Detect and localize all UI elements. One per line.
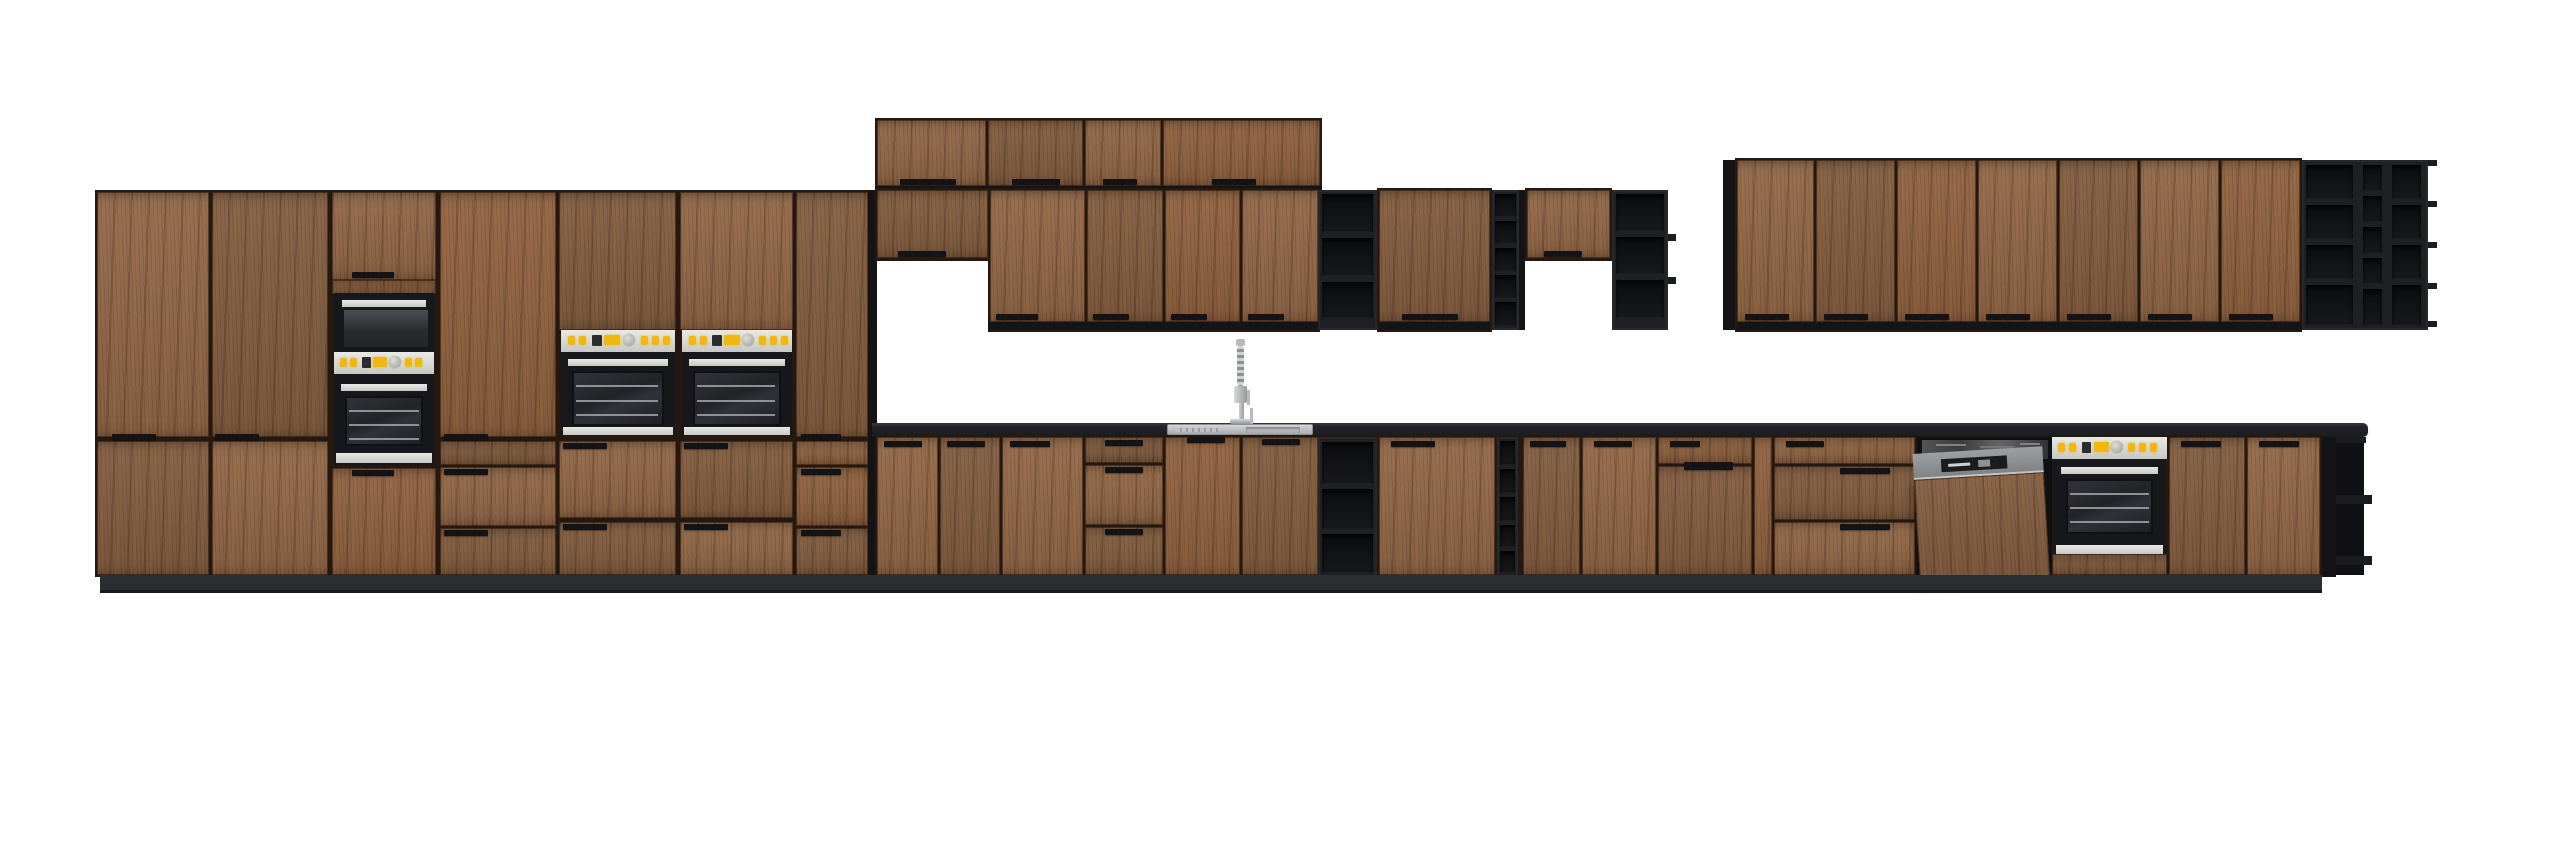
handle (1402, 314, 1458, 320)
oven-door (682, 352, 792, 435)
tall-cabinet-door (796, 192, 868, 437)
open-shelf-cubby (1322, 282, 1373, 318)
wall-door (1087, 190, 1163, 322)
sink-basin (1246, 427, 1300, 433)
bottle-cubby (1500, 497, 1515, 521)
black-open-shelf-unit (1612, 190, 1668, 330)
handle (996, 314, 1038, 320)
tower-top-panel (680, 192, 793, 330)
handle (1105, 467, 1143, 473)
compact-oven-door (334, 374, 434, 465)
handle (1544, 251, 1582, 257)
wall-door (1978, 160, 2057, 322)
open-shelf-cubby (2306, 165, 2353, 199)
handle (801, 530, 841, 536)
handle (1905, 314, 1949, 320)
oven-selector (592, 335, 602, 346)
oven-knob (2111, 441, 2123, 453)
bottle-cubby (1500, 469, 1515, 493)
base-door-wide (1379, 437, 1495, 575)
right-run-underside (1737, 322, 2302, 330)
handle (352, 470, 394, 476)
dishwasher-door (1912, 446, 2050, 584)
bottle-cubby (1495, 275, 1516, 298)
dishwasher-logo (1978, 459, 1990, 467)
faucet-base (1230, 419, 1251, 424)
drawer-front (440, 441, 556, 465)
drawer-front (1774, 466, 1915, 520)
drawer-front (680, 441, 793, 518)
bottle-cubby (2363, 258, 2382, 284)
oven-handle-bar (568, 359, 668, 366)
tall-cabinet-door (440, 192, 556, 437)
oven-rack (2070, 507, 2149, 509)
oven-rack (576, 400, 658, 402)
oven-dial-icon (641, 336, 648, 345)
dishwasher-wood-front (1914, 472, 2050, 585)
handle (1262, 439, 1300, 445)
open-shelf-cubby (1322, 489, 1373, 529)
handle (898, 251, 946, 257)
wall-door (990, 190, 1085, 322)
oven-control-panel (2052, 437, 2167, 459)
open-shelf-cubby (2392, 205, 2421, 239)
stacked-door (877, 120, 986, 186)
wall-door-wide (1379, 190, 1490, 322)
handle (1105, 529, 1143, 535)
black-open-shelf-base (1318, 437, 1377, 577)
wall-door (1816, 160, 1895, 322)
tall-cabinet-door (212, 192, 328, 437)
oven-dial-icon (579, 336, 586, 345)
open-shelf-cubby (2306, 245, 2353, 279)
plinth (100, 575, 2322, 593)
right-run-side-panel (1723, 160, 1735, 330)
tall-cabinet-lower-door (212, 441, 328, 575)
oven-handle-bar (341, 384, 427, 391)
oven-selector (2082, 442, 2091, 453)
handle (684, 443, 728, 449)
oven-glass (693, 371, 781, 426)
oven-knob (389, 356, 401, 368)
oven-bottom-trim (563, 427, 673, 435)
handle (1391, 441, 1435, 447)
open-shelf-cubby (1322, 442, 1373, 484)
bottle-cubby (2363, 165, 2382, 191)
open-shelf-cubby (1616, 194, 1664, 231)
handle (2148, 314, 2192, 320)
oven-selector (712, 335, 722, 346)
handle (1840, 524, 1890, 530)
handle (947, 441, 985, 447)
corner-shelf (2336, 495, 2372, 504)
oven-dial-icon (2150, 443, 2157, 452)
handle (684, 524, 728, 530)
corner-side-panel (2322, 437, 2336, 577)
oven-rack (697, 385, 775, 387)
filler-panel (1754, 437, 1772, 575)
oven-glass (345, 396, 423, 446)
bridge-flip-door (1527, 190, 1610, 258)
dishwasher-button-panel (1941, 455, 2008, 472)
handle (1212, 179, 1256, 185)
handle (900, 179, 956, 185)
handle (1745, 314, 1789, 320)
handle (2259, 441, 2299, 447)
faucet-lever (1247, 390, 1250, 405)
base-door (940, 437, 1000, 575)
oven-bottom-trim (684, 427, 790, 435)
oven-knob (742, 334, 754, 346)
open-shelf-cubby (2306, 285, 2353, 325)
oven-base-strip (2052, 554, 2167, 575)
handle (1840, 468, 1890, 474)
bottle-cubby (1495, 302, 1516, 326)
shelf-tab (1668, 234, 1676, 241)
oven-dial-icon (350, 358, 357, 367)
bottle-cubby (1500, 441, 1515, 465)
wall-door (2059, 160, 2138, 322)
bottle-cubby (1495, 194, 1516, 217)
handle (1010, 441, 1050, 447)
oven-handle-bar (2061, 467, 2158, 474)
oven-knob (623, 334, 635, 346)
oven-door (561, 352, 675, 435)
bottle-cubby (1495, 221, 1516, 244)
drawer-front (796, 441, 868, 465)
kitchen-render (0, 0, 2560, 847)
wall-door (1897, 160, 1976, 322)
handle (444, 434, 488, 440)
open-shelf-cubby (1616, 280, 1664, 318)
handle (1684, 462, 1733, 470)
black-open-shelf-unit (1318, 190, 1377, 330)
faucet-body (1234, 386, 1247, 403)
handle (215, 434, 259, 440)
oven-control-panel (682, 330, 792, 352)
handle (1786, 441, 1824, 447)
oven-bottom-trim (2056, 545, 2163, 554)
oven-selector (362, 357, 371, 368)
oven-display (373, 357, 387, 367)
tower-lower-door (332, 468, 436, 575)
black-bottle-rack (1492, 190, 1519, 330)
tower-top-door (332, 192, 436, 280)
dish-rack (2020, 443, 2040, 445)
microwave-screen (344, 310, 428, 347)
oven-rack (576, 414, 658, 416)
oven-bottom-trim (336, 453, 432, 463)
shelf-tab (2428, 160, 2437, 166)
oven-display (2094, 442, 2109, 452)
handle (1530, 441, 1566, 447)
handle (444, 530, 488, 536)
wall-door (2140, 160, 2219, 322)
handle (2229, 314, 2273, 320)
tower-top-panel (559, 192, 676, 330)
base-door (1242, 437, 1318, 575)
oven-dial-icon (405, 358, 412, 367)
base-door (2247, 437, 2320, 575)
oven-dial-icon (770, 336, 777, 345)
oven-dial-icon (340, 358, 347, 367)
oven-dial-icon (781, 336, 788, 345)
handle (1012, 179, 1060, 185)
oven-rack (349, 424, 419, 426)
handle (2067, 314, 2111, 320)
handle (1093, 314, 1129, 320)
wall-door (1165, 190, 1240, 322)
sink-drainboard (1176, 428, 1218, 432)
base-door (1002, 437, 1083, 575)
bottle-cubby (1500, 551, 1515, 573)
base-door (2169, 437, 2245, 575)
oven-rack (349, 410, 419, 412)
open-shelf-cubby (2392, 245, 2421, 279)
oven-rack (576, 385, 658, 387)
black-bottle-rack-base (1497, 437, 1518, 577)
stacked-door (1085, 120, 1161, 186)
corner-shelf (2336, 556, 2372, 565)
base-door (1582, 437, 1656, 575)
handle (1105, 440, 1143, 446)
tall-cabinet-door (97, 192, 209, 437)
handle (1594, 441, 1632, 447)
corner-shelf (2336, 437, 2366, 443)
handle (112, 434, 156, 440)
base-door (1523, 437, 1580, 575)
compact-oven-control-panel (334, 352, 434, 374)
handle (801, 434, 841, 440)
oven-glass (2066, 479, 2153, 534)
oven-dial-icon (2069, 443, 2076, 452)
oven-display (604, 335, 620, 345)
oven-control-panel (561, 330, 675, 352)
handle (801, 469, 841, 475)
deep-drawer-front (1658, 466, 1752, 575)
oven-dial-icon (2139, 443, 2146, 452)
stacked-door (988, 120, 1083, 186)
oven-dial-icon (2058, 443, 2065, 452)
handle (1187, 437, 1225, 443)
drawer-front (559, 441, 676, 518)
open-shelf-cubby (2392, 285, 2421, 325)
open-shelf-cubby (2392, 165, 2421, 199)
dish-rack (1936, 444, 1966, 446)
oven-rack (349, 438, 419, 440)
black-corner-shelf-upper (2302, 160, 2428, 330)
sink-base-door (1165, 437, 1240, 575)
shelf-tab (2428, 242, 2437, 248)
handle (1986, 314, 2030, 320)
handle (1103, 179, 1137, 185)
faucet-coil (1237, 346, 1244, 386)
bottle-cubby (1495, 248, 1516, 271)
open-shelf-cubby (1322, 534, 1373, 573)
oven-glass (572, 371, 664, 426)
oven-rack (697, 414, 775, 416)
stacked-door (1163, 120, 1320, 186)
microwave-trim (342, 300, 426, 307)
handle (563, 443, 607, 449)
bottle-cubby (2363, 227, 2382, 253)
oven-dial-icon (652, 336, 659, 345)
handle (1824, 314, 1868, 320)
dishwasher-display (1948, 463, 1970, 467)
open-shelf-cubby (1322, 238, 1373, 276)
oven-dial-icon (568, 336, 575, 345)
microwave (334, 293, 434, 352)
drawer-front (1085, 465, 1163, 525)
base-door (877, 437, 938, 575)
handle (1248, 314, 1284, 320)
bottle-cubby (2363, 196, 2382, 222)
oven-handle-bar (689, 359, 785, 366)
oven-dial-icon (2128, 443, 2135, 452)
faucet-knob (1236, 339, 1245, 346)
open-shelf-cubby (1322, 194, 1373, 232)
open-shelf-cubby (2306, 205, 2353, 239)
handle (1171, 314, 1207, 320)
oven-dial-icon (700, 336, 707, 345)
oven-dial-icon (759, 336, 766, 345)
wall-flip-door (877, 190, 988, 258)
drawer-front (796, 467, 868, 526)
shelf-tab (2428, 321, 2437, 327)
wall-row-underside (1379, 322, 1490, 330)
bottle-cubby (1500, 525, 1515, 547)
shelf-tab (2428, 283, 2437, 289)
shelf-tab (1668, 277, 1676, 284)
oven-display (724, 335, 740, 345)
shelf-tab (2428, 201, 2437, 207)
tower-spacer (332, 280, 436, 294)
wall-door (2221, 160, 2300, 322)
handle (444, 469, 488, 475)
wall-door (1242, 190, 1318, 322)
handle (563, 524, 607, 530)
oven-rack (2070, 493, 2149, 495)
handle (1670, 441, 1700, 447)
sink (1167, 424, 1313, 435)
tall-cabinet-lower-door (97, 441, 209, 575)
wall-row-underside (988, 322, 1318, 330)
wall-door (1737, 160, 1814, 322)
handle (884, 441, 922, 447)
handle (2181, 441, 2221, 447)
open-shelf-cubby (1616, 237, 1664, 274)
oven-door (2054, 459, 2165, 554)
bottle-cubby (2363, 289, 2382, 325)
oven-rack (2070, 521, 2149, 523)
oven-dial-icon (415, 358, 422, 367)
oven-rack (697, 400, 775, 402)
oven-dial-icon (689, 336, 696, 345)
oven-dial-icon (663, 336, 670, 345)
drawer-front (440, 467, 556, 526)
handle (352, 272, 394, 278)
